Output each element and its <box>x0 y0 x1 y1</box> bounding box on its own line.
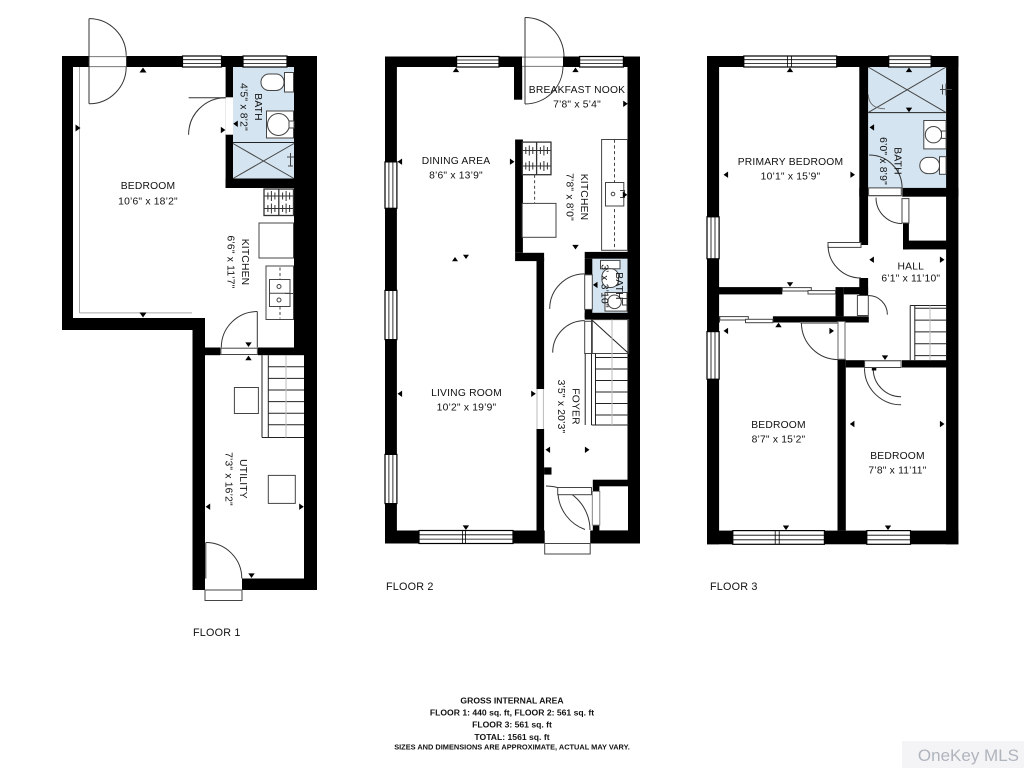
svg-text:10’2" x 19’9": 10’2" x 19’9" <box>437 403 497 414</box>
svg-text:PRIMARY BEDROOM: PRIMARY BEDROOM <box>738 157 844 168</box>
svg-text:TOTAL: 1561 sq. ft: TOTAL: 1561 sq. ft <box>474 732 549 742</box>
svg-text:BREAKFAST NOOK: BREAKFAST NOOK <box>529 85 625 96</box>
svg-text:3’5" x 20’3": 3’5" x 20’3" <box>555 380 566 434</box>
svg-text:BATH: BATH <box>892 147 903 175</box>
svg-text:10’6" x 18’2": 10’6" x 18’2" <box>118 197 178 208</box>
svg-text:FLOOR 3: 561 sq. ft: FLOOR 3: 561 sq. ft <box>472 720 552 730</box>
svg-text:KITCHEN: KITCHEN <box>578 174 589 221</box>
svg-text:FOYER: FOYER <box>570 388 581 424</box>
svg-text:6’0" x 8’9": 6’0" x 8’9" <box>877 137 888 185</box>
svg-text:BEDROOM: BEDROOM <box>751 420 806 431</box>
svg-text:BEDROOM: BEDROOM <box>870 451 925 462</box>
svg-text:4’5" x 8’2": 4’5" x 8’2" <box>238 83 249 131</box>
svg-text:FLOOR 1: FLOOR 1 <box>193 627 241 639</box>
svg-text:FLOOR 3: FLOOR 3 <box>710 581 758 593</box>
svg-text:BATH: BATH <box>252 93 263 121</box>
svg-text:3’ x 3’10": 3’ x 3’10" <box>599 264 610 308</box>
svg-text:BEDROOM: BEDROOM <box>121 181 176 192</box>
svg-text:BATH: BATH <box>613 272 624 300</box>
svg-text:10’1" x 15’9": 10’1" x 15’9" <box>761 172 821 183</box>
svg-text:7’8" x 8’0": 7’8" x 8’0" <box>564 173 575 221</box>
svg-text:GROSS INTERNAL AREA: GROSS INTERNAL AREA <box>460 696 563 706</box>
svg-text:8’7" x 15’2": 8’7" x 15’2" <box>752 435 806 446</box>
svg-text:7’8" x 11’11": 7’8" x 11’11" <box>868 466 926 477</box>
svg-text:6’1" x 11’10": 6’1" x 11’10" <box>881 274 940 285</box>
svg-text:OneKey MLS: OneKey MLS <box>918 746 1019 765</box>
svg-text:SIZES AND DIMENSIONS ARE APPRO: SIZES AND DIMENSIONS ARE APPROXIMATE, AC… <box>394 742 630 751</box>
svg-text:FLOOR 1: 440 sq. ft, FLOOR 2:: FLOOR 1: 440 sq. ft, FLOOR 2: 561 sq. ft <box>430 708 594 718</box>
svg-text:DINING AREA: DINING AREA <box>422 156 491 167</box>
svg-text:FLOOR 2: FLOOR 2 <box>386 581 434 593</box>
svg-text:8’6" x 13’9": 8’6" x 13’9" <box>429 171 483 182</box>
svg-text:HALL: HALL <box>898 262 925 273</box>
svg-text:7’8" x 5’4": 7’8" x 5’4" <box>553 100 601 111</box>
svg-text:7’3" x 16’2": 7’3" x 16’2" <box>223 452 234 506</box>
svg-text:KITCHEN: KITCHEN <box>239 239 250 286</box>
svg-text:UTILITY: UTILITY <box>237 459 248 499</box>
svg-text:6’6" x 11’7": 6’6" x 11’7" <box>225 235 236 288</box>
svg-text:LIVING ROOM: LIVING ROOM <box>431 388 502 399</box>
